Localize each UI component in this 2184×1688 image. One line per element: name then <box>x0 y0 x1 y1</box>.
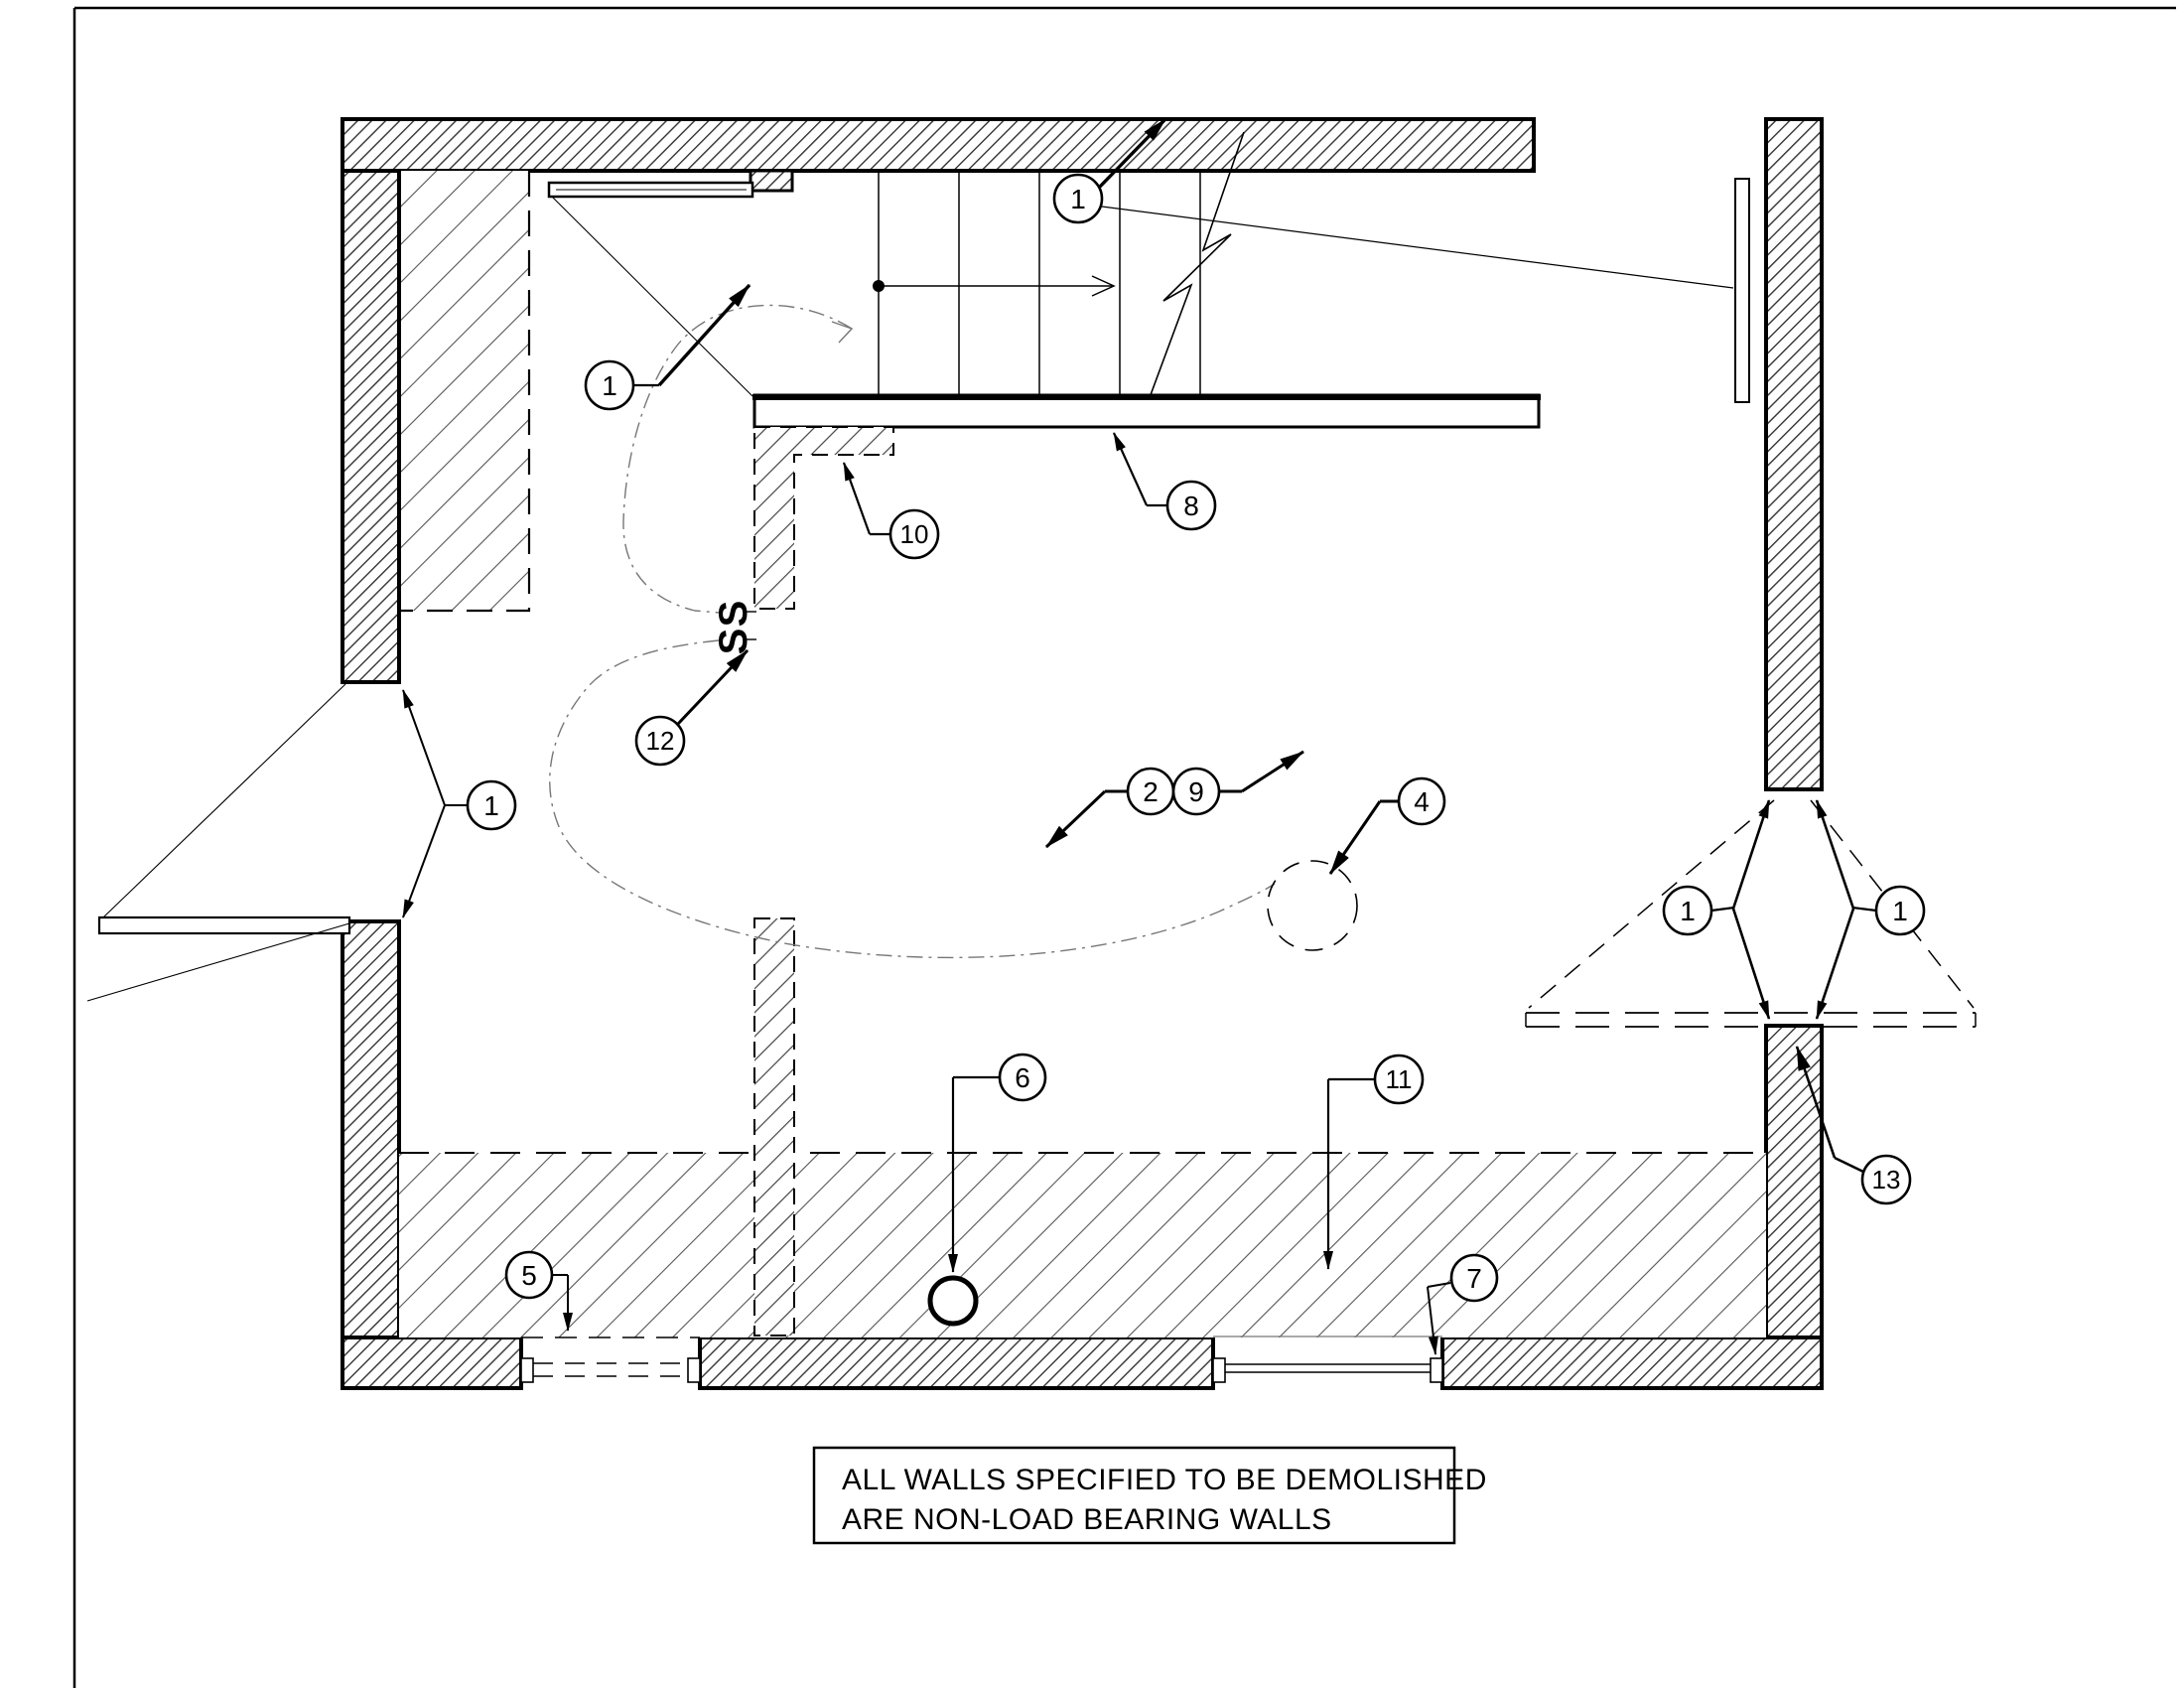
callout-10: 10 <box>844 463 938 558</box>
note-line-1: ALL WALLS SPECIFIED TO BE DEMOLISHED <box>842 1464 1487 1496</box>
top-wall <box>342 119 1534 171</box>
stair-direction-arrow <box>873 276 1114 296</box>
stair-break-line <box>1142 132 1244 419</box>
callout-4: 4 <box>1330 778 1444 874</box>
stairs <box>752 132 1541 427</box>
bottom-wall-right-segment <box>1442 1337 1822 1388</box>
callout-12: 12 <box>636 650 748 765</box>
dashed-circle-target <box>1268 861 1357 950</box>
ss-lower-label: S <box>712 629 755 655</box>
window-5 <box>521 1358 700 1382</box>
right-wall-upper <box>1766 119 1822 789</box>
svg-text:1: 1 <box>483 790 499 821</box>
left-wall-upper <box>342 171 399 682</box>
svg-text:5: 5 <box>521 1260 537 1291</box>
shelf <box>549 183 752 396</box>
callout-2-9: 2 9 <box>1046 752 1303 847</box>
ss-annotation: S S <box>712 601 756 655</box>
svg-text:6: 6 <box>1015 1062 1030 1093</box>
callout-1-right-door-left: 1 <box>1664 887 1734 934</box>
svg-text:10: 10 <box>900 519 929 549</box>
svg-text:1: 1 <box>1680 896 1696 926</box>
bottom-wall-mid-segment <box>700 1337 1213 1388</box>
demolished-closet <box>401 171 529 611</box>
stair-landing-wall <box>752 395 1541 427</box>
callout-8: 8 <box>1114 433 1215 529</box>
drawing-sheet: S S 1 1 1 8 10 <box>0 0 2184 1688</box>
svg-text:2: 2 <box>1143 776 1159 807</box>
svg-text:1: 1 <box>602 370 617 401</box>
callout-1-right-door-right: 1 <box>1852 887 1924 934</box>
callout-1-left-door: 1 <box>403 690 515 917</box>
door-swing-chord <box>103 684 345 917</box>
door-leaf <box>99 917 349 933</box>
svg-text:12: 12 <box>646 726 675 756</box>
right-wall-window <box>1735 179 1749 402</box>
demolition-zone <box>399 1153 1766 1337</box>
callout-1-stair-area: 1 <box>586 285 750 409</box>
svg-text:11: 11 <box>1386 1064 1413 1094</box>
column-target-circle <box>930 1278 976 1324</box>
closet-door-swing-line <box>552 197 752 396</box>
svg-text:4: 4 <box>1414 786 1430 817</box>
door-swing-chord-2 <box>87 923 349 1001</box>
wall-pilaster-notch <box>751 171 792 191</box>
demolished-partition <box>754 918 794 1336</box>
left-wall-lower <box>342 921 399 1337</box>
svg-text:1: 1 <box>1892 896 1908 926</box>
right-swing-door <box>1733 800 1853 1019</box>
left-entry-door <box>87 684 349 1001</box>
svg-text:8: 8 <box>1183 491 1199 521</box>
demolished-pier <box>754 427 893 609</box>
note-box: ALL WALLS SPECIFIED TO BE DEMOLISHED ARE… <box>814 1448 1487 1543</box>
svg-text:9: 9 <box>1188 776 1204 807</box>
svg-text:1: 1 <box>1070 184 1086 214</box>
window-7 <box>1213 1358 1442 1382</box>
right-wall-lower <box>1766 1026 1822 1388</box>
svg-text:13: 13 <box>1872 1165 1901 1195</box>
bottom-wall-left-segment <box>342 1337 521 1388</box>
note-line-2: ARE NON-LOAD BEARING WALLS <box>842 1503 1332 1536</box>
svg-text:7: 7 <box>1466 1263 1482 1294</box>
ss-upper-label: S <box>712 601 755 628</box>
demolition-plan-svg: S S 1 1 1 8 10 <box>0 0 2184 1688</box>
